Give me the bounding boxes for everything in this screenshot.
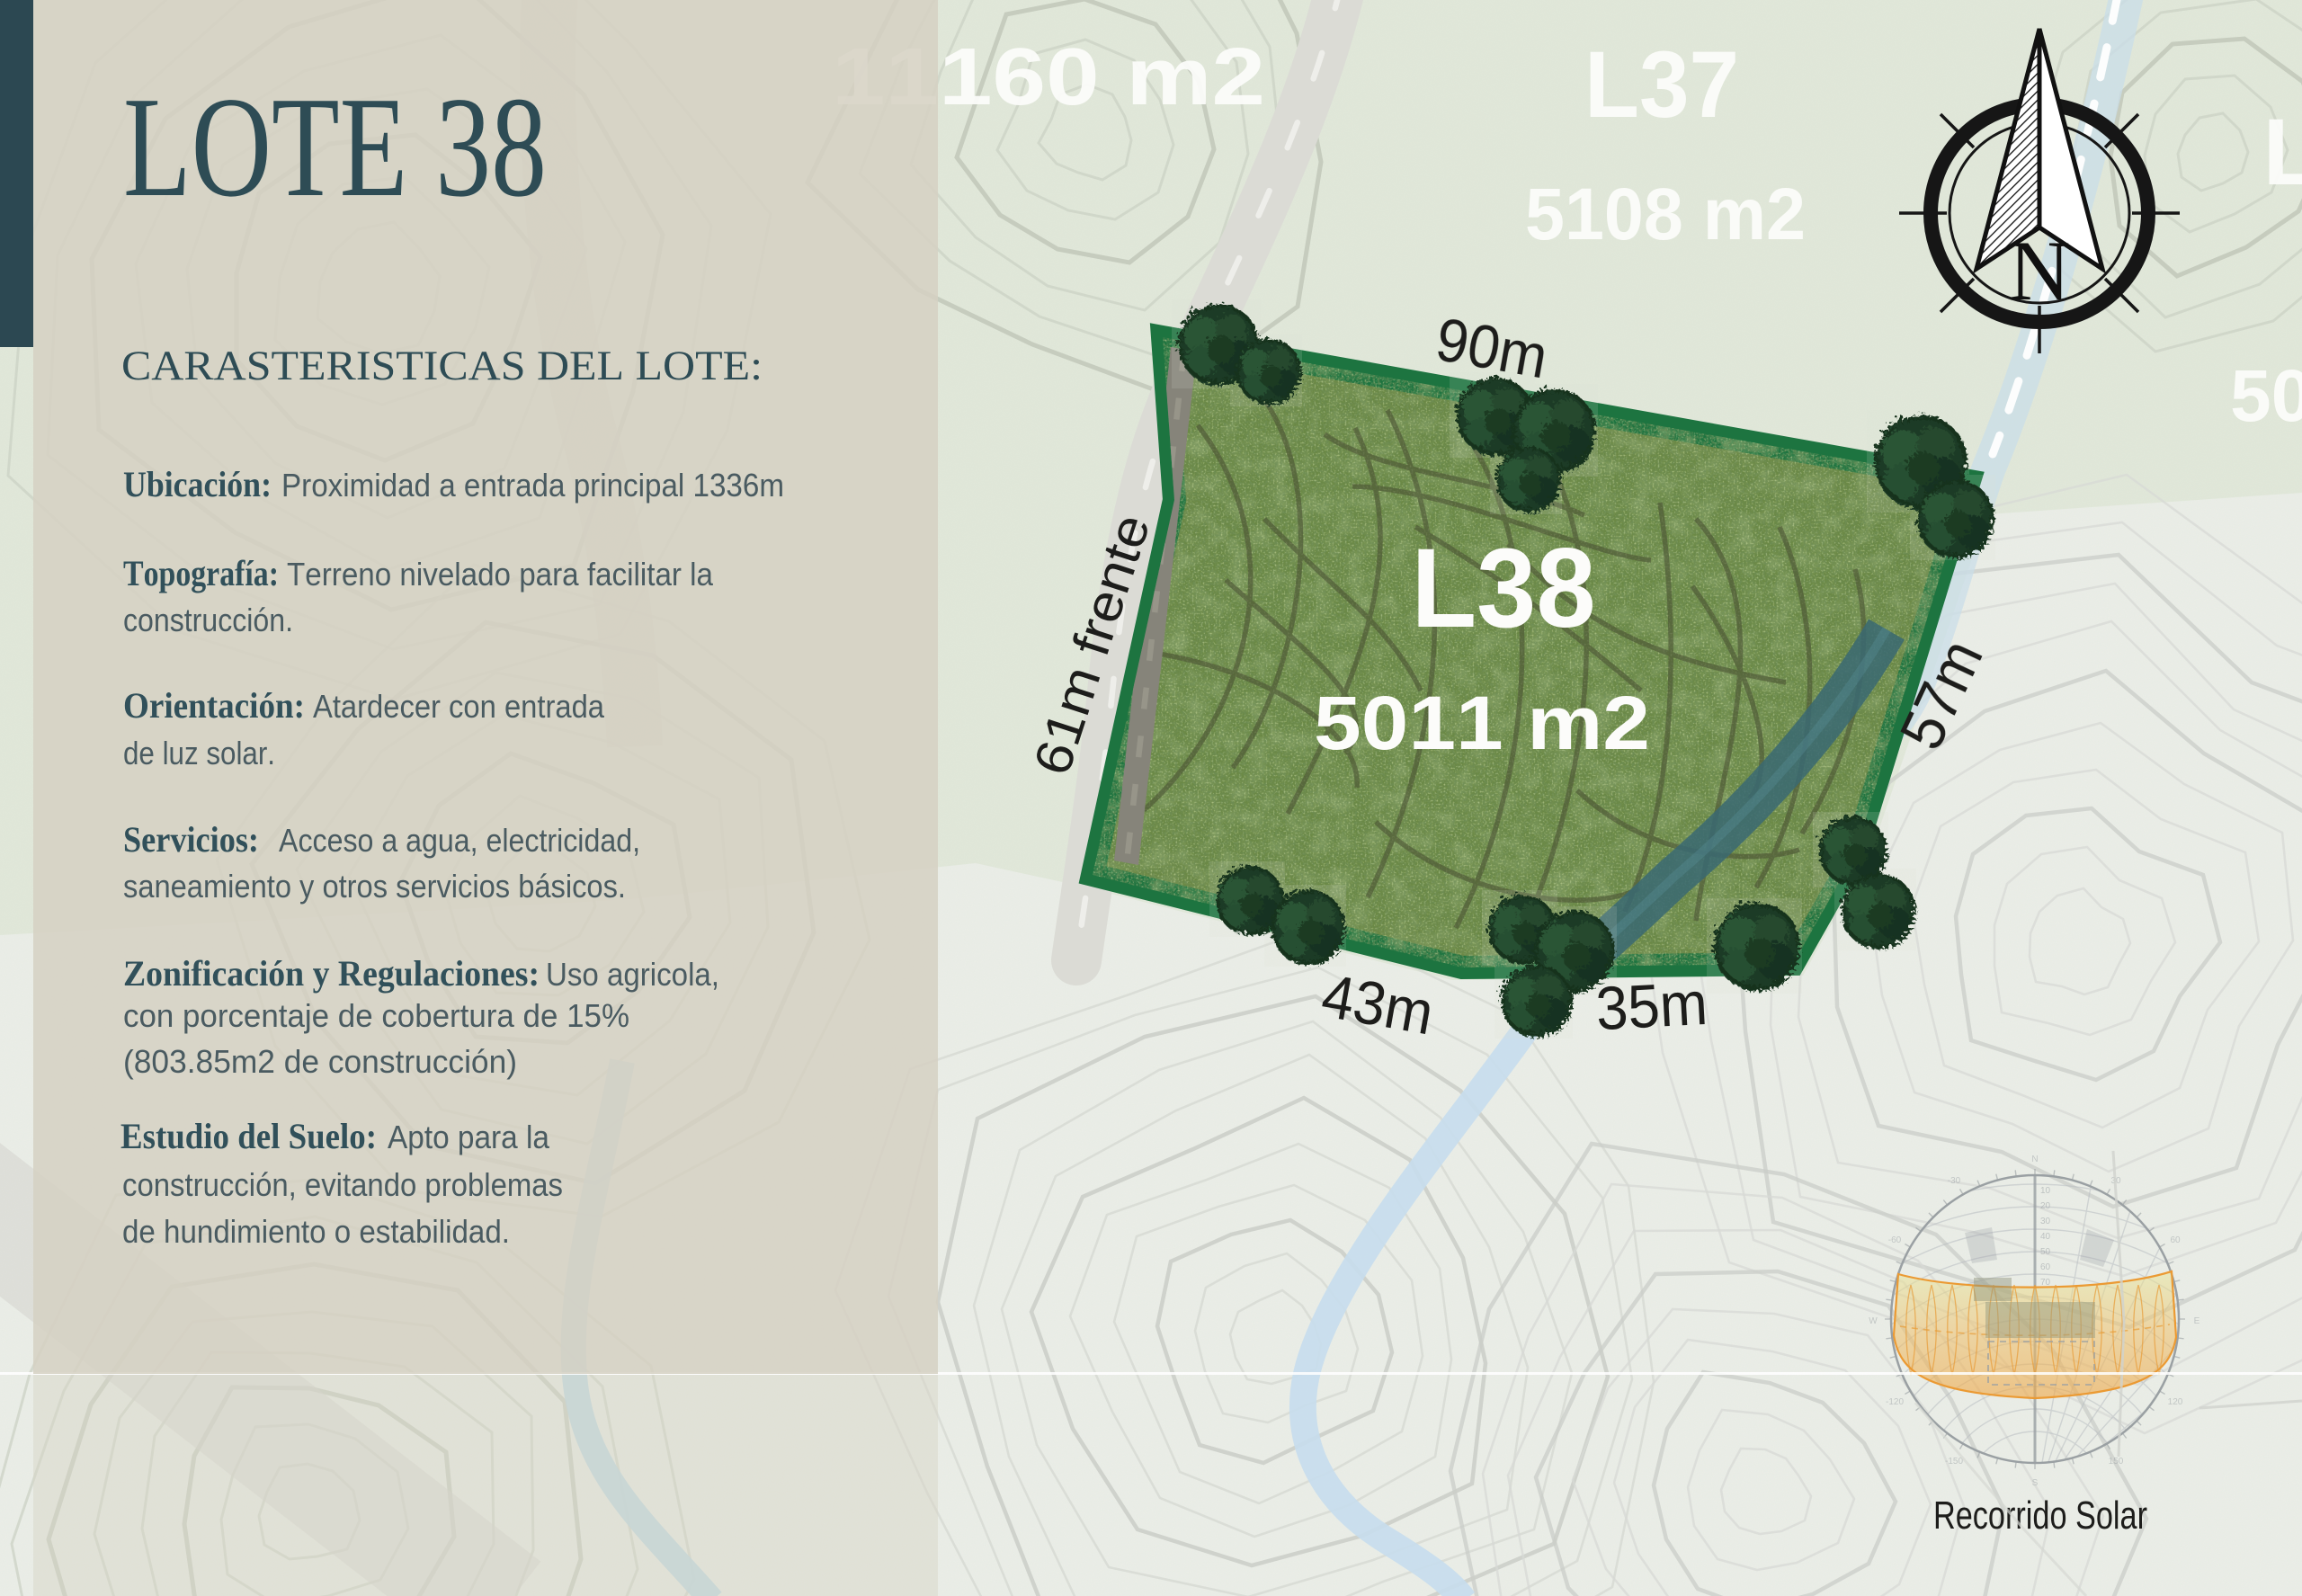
svg-text:-120: -120	[1886, 1397, 1904, 1407]
svg-text:Servicios:: Servicios:	[123, 819, 259, 860]
svg-text:construcción.: construcción.	[123, 602, 293, 638]
svg-text:W: W	[1869, 1316, 1878, 1326]
svg-text:5059 m2: 5059 m2	[2230, 355, 2302, 437]
svg-text:Atardecer con entrada: Atardecer con entrada	[313, 688, 605, 725]
svg-text:50: 50	[2040, 1247, 2051, 1257]
svg-text:-60: -60	[1888, 1235, 1902, 1245]
svg-text:40: 40	[2040, 1232, 2051, 1242]
svg-text:20: 20	[2040, 1201, 2051, 1211]
svg-text:Recorrido Solar: Recorrido Solar	[1933, 1493, 2147, 1538]
svg-text:N: N	[2009, 223, 2071, 318]
svg-text:saneamiento y otros servicios: saneamiento y otros servicios básicos.	[123, 868, 626, 905]
svg-text:con porcentaje de cobertura de: con porcentaje de cobertura de 15%	[123, 997, 629, 1034]
svg-text:L38: L38	[1412, 526, 1596, 651]
svg-text:S: S	[2032, 1478, 2039, 1488]
svg-text:60: 60	[2040, 1262, 2051, 1272]
svg-text:Proximidad a entrada principal: Proximidad a entrada principal 1336m	[281, 467, 784, 504]
svg-text:N: N	[2031, 1155, 2038, 1164]
svg-text:Topografía:: Topografía:	[123, 553, 279, 593]
svg-text:30: 30	[2040, 1217, 2051, 1226]
svg-text:Zonificación y Regulaciones:: Zonificación y Regulaciones:	[123, 953, 540, 994]
svg-text:35m: 35m	[1594, 969, 1709, 1043]
svg-text:LOTE 38: LOTE 38	[123, 67, 547, 227]
svg-text:5011 m2: 5011 m2	[1314, 681, 1650, 765]
svg-text:-30: -30	[1948, 1176, 1961, 1186]
svg-text:L39: L39	[2263, 100, 2302, 205]
svg-text:60: 60	[2170, 1235, 2181, 1245]
svg-text:Ubicación:: Ubicación:	[123, 464, 272, 504]
svg-text:Estudio del Suelo:: Estudio del Suelo:	[120, 1116, 377, 1156]
svg-text:120: 120	[2168, 1397, 2183, 1407]
svg-text:construcción, evitando problem: construcción, evitando problemas	[122, 1166, 563, 1203]
svg-text:150: 150	[2109, 1457, 2124, 1467]
svg-text:Orientación:: Orientación:	[123, 685, 305, 726]
svg-text:CARASTERISTICAS DEL LOTE:: CARASTERISTICAS DEL LOTE:	[121, 343, 763, 389]
svg-text:de hundimiento o estabilidad.: de hundimiento o estabilidad.	[122, 1213, 510, 1250]
svg-text:Uso agricola,: Uso agricola,	[546, 956, 719, 993]
svg-text:-150: -150	[1945, 1457, 1963, 1467]
svg-text:E: E	[2194, 1316, 2200, 1326]
svg-text:10: 10	[2040, 1186, 2051, 1196]
svg-text:Acceso a agua, electricidad,: Acceso a agua, electricidad,	[279, 822, 640, 859]
svg-text:de luz solar.: de luz solar.	[123, 735, 275, 771]
svg-text:Terreno nivelado para facilita: Terreno nivelado para facilitar la	[287, 556, 714, 593]
svg-text:Apto para la: Apto para la	[388, 1119, 550, 1155]
svg-text:(803.85m2 de construcción): (803.85m2 de construcción)	[123, 1043, 517, 1080]
svg-text:L37: L37	[1584, 32, 1739, 138]
svg-text:5108 m2: 5108 m2	[1525, 174, 1806, 255]
